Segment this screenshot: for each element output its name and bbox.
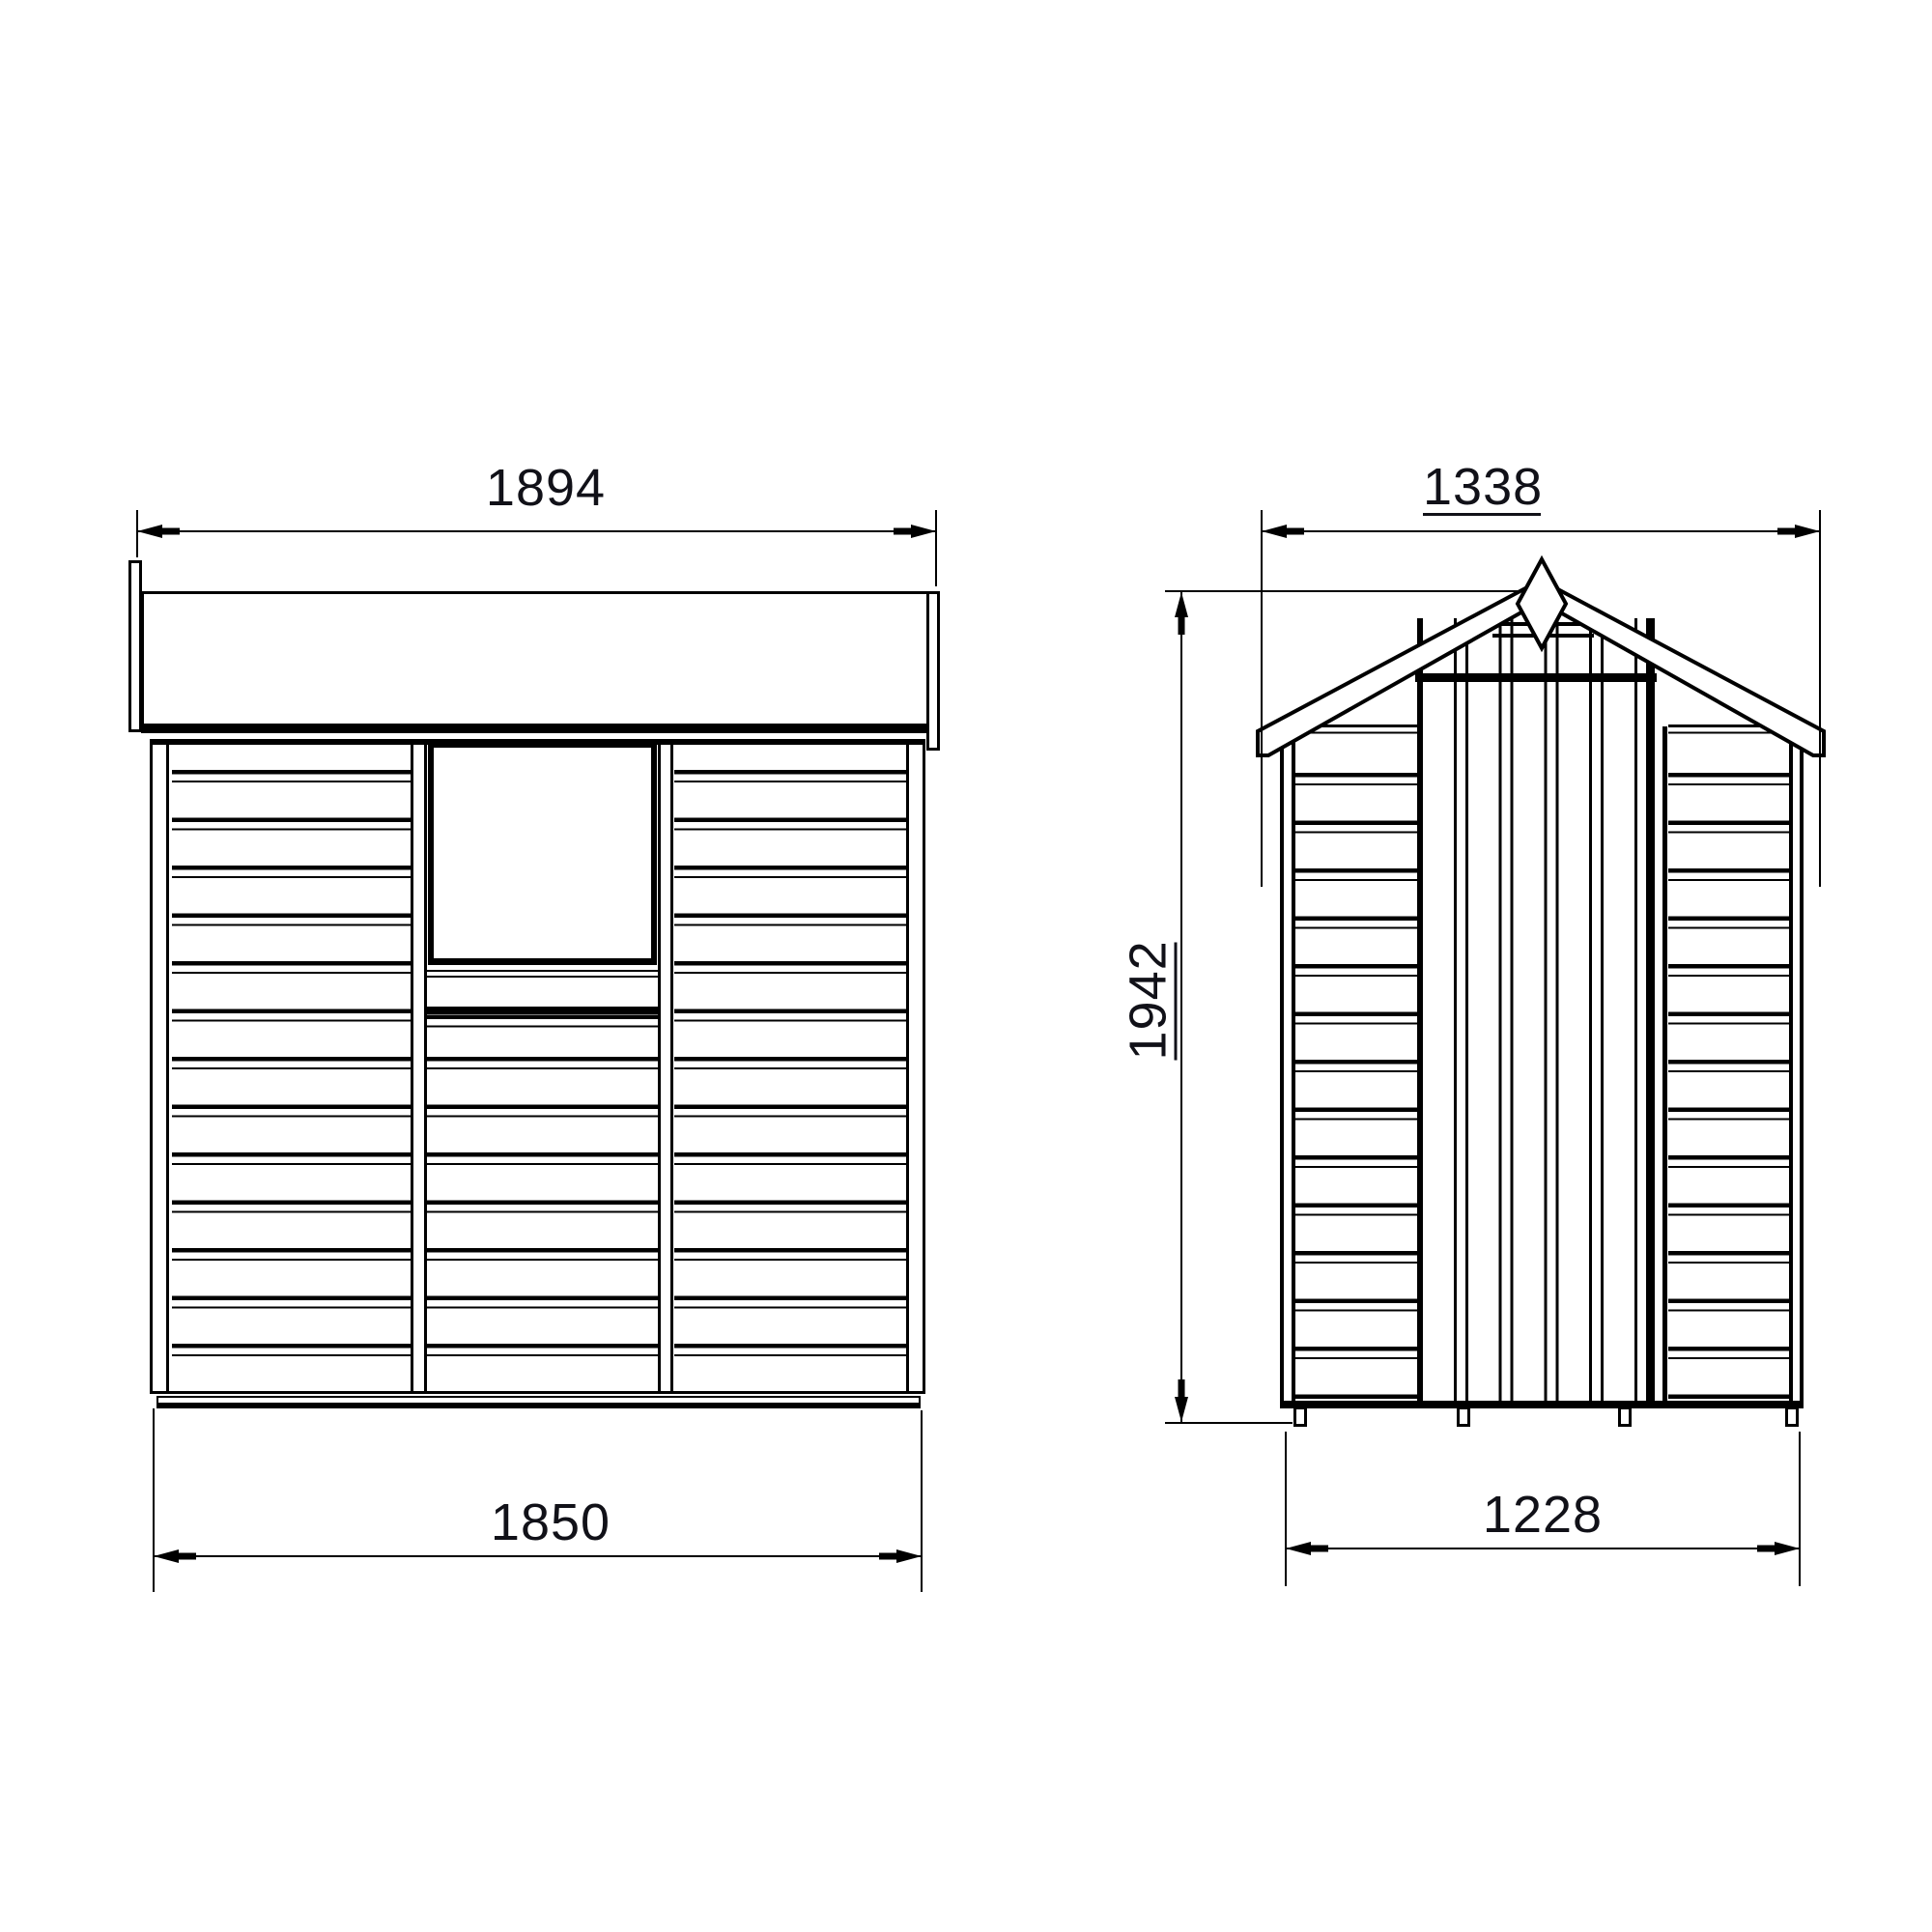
dim-side-width-overall: 1894 <box>447 462 644 514</box>
technical-drawing: 1894 1850 1338 1942 1228 <box>0 0 1932 1932</box>
dim-side-width-base: 1850 <box>452 1496 649 1548</box>
dim-front-height-overall: 1942 <box>1122 943 1178 1061</box>
roof-rake-left <box>1258 580 1542 755</box>
roof-rake-right <box>1540 580 1824 755</box>
dim-front-width-base: 1228 <box>1444 1489 1641 1541</box>
dimension-lines <box>137 510 1820 1592</box>
dim-front-width-overall: 1338 <box>1423 461 1541 516</box>
dimension-arrows <box>137 525 1820 1563</box>
linework-overlay <box>0 0 1932 1932</box>
